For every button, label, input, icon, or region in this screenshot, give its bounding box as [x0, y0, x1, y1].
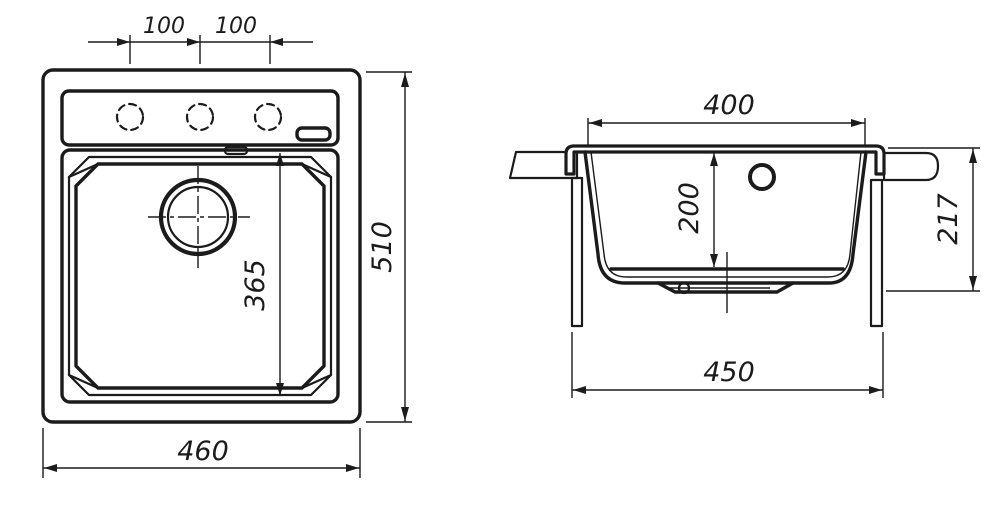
- dim-bowl-depth: 200: [674, 153, 718, 267]
- overflow-slot: [297, 128, 330, 140]
- dim-label-450: 450: [703, 357, 755, 388]
- dim-label-365: 365: [240, 259, 271, 311]
- cabinet-panel-right: [871, 180, 882, 326]
- faucet-hole-center: [187, 104, 213, 130]
- dim-faucet-pitch: 100 100: [88, 14, 313, 64]
- dim-overall-height: 217: [886, 148, 980, 291]
- dim-label-100-left: 100: [143, 14, 185, 39]
- technical-drawing: 100 100 510 460 365: [0, 0, 1000, 505]
- overflow-circle-section: [750, 165, 774, 189]
- dim-label-400: 400: [703, 90, 755, 121]
- bowl-rim-crease: [69, 157, 331, 395]
- dim-bowl-top-width: 400: [588, 90, 865, 146]
- bowl-corner-bevels: [69, 164, 331, 388]
- countertop-right: [884, 153, 938, 180]
- dim-overall-width: 460: [43, 428, 360, 478]
- dim-label-460: 460: [177, 436, 229, 467]
- dim-label-100-right: 100: [215, 14, 257, 39]
- dim-label-200: 200: [674, 182, 705, 234]
- sink-drawing-canvas: 100 100 510 460 365: [0, 0, 1000, 505]
- dim-overall-depth: 510: [366, 72, 412, 422]
- basin-outer-wall: [585, 152, 866, 283]
- dim-bowl-length: 365: [240, 153, 284, 396]
- top-view: 100 100 510 460 365: [43, 14, 412, 478]
- faucet-hole-left: [117, 104, 143, 130]
- faucet-hole-right: [255, 104, 281, 130]
- sink-rim-section: [566, 146, 884, 174]
- bowl-inner-edge: [76, 164, 324, 388]
- cabinet-panel-left: [572, 178, 582, 326]
- section-view: 400 200 217 450: [510, 90, 980, 398]
- dim-label-217: 217: [933, 193, 964, 245]
- dim-cabinet-width: 450: [572, 332, 883, 398]
- basin-shell-inner-line: [591, 152, 861, 277]
- dim-label-510: 510: [367, 221, 398, 273]
